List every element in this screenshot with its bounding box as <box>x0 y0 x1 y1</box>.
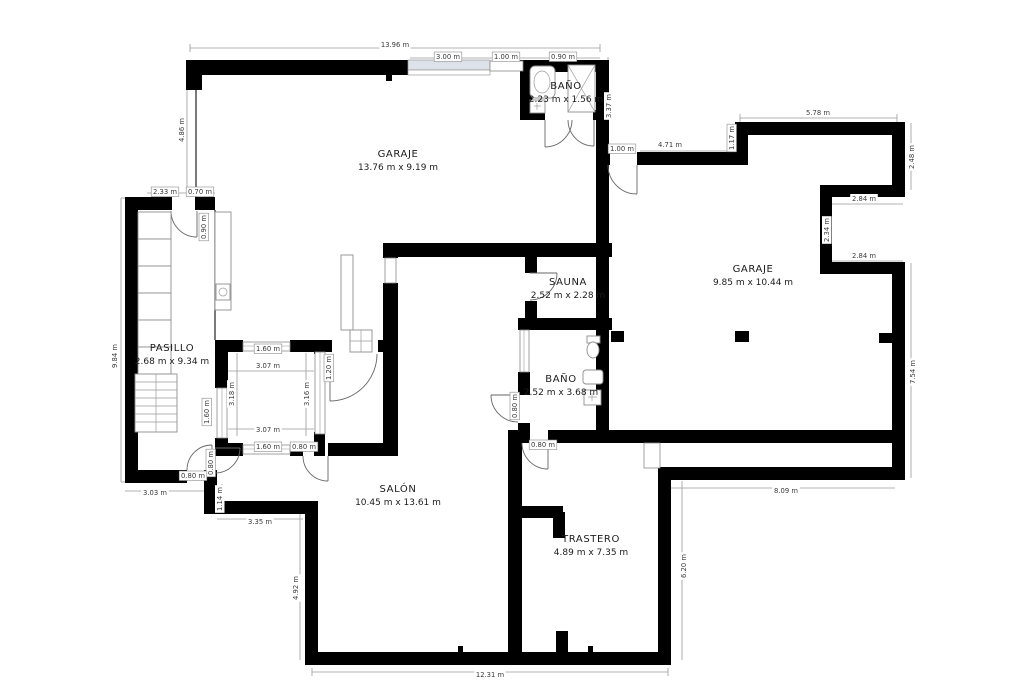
floorplan-drawing: GARAJE13.76 m x 9.19 mBAÑO2.23 m x 1.56 … <box>0 0 1024 693</box>
dimension-label: 3.07 m <box>254 425 282 435</box>
dimension-text: 3.18 m <box>228 382 236 406</box>
room-dimensions: 10.45 m x 13.61 m <box>355 498 441 508</box>
door-garage-entry <box>608 165 637 194</box>
room-label: SAUNA <box>549 277 587 288</box>
dimension-label: 0.90 m <box>199 213 209 241</box>
dimension-text: 2.84 m <box>852 252 876 260</box>
dimension-label: 0.90 m <box>549 52 577 62</box>
room-dimensions: 2.68 m x 9.34 m <box>135 357 209 367</box>
dimension-text: 12.31 m <box>476 671 505 679</box>
dimension-label: 3.07 m <box>254 361 282 371</box>
dimension-label: 0.80 m <box>290 442 318 452</box>
dimension-label: 7.54 m <box>908 358 918 386</box>
toilet-icon <box>587 336 600 358</box>
counter-2 <box>341 255 372 352</box>
dimension-label: 13.96 m <box>379 40 410 50</box>
dimension-text: 0.80 m <box>181 472 205 480</box>
dimension-label: 3.18 m <box>227 380 237 408</box>
dimension-label: 3.03 m <box>141 488 169 498</box>
stairs <box>135 374 177 432</box>
dimension-text: 1.60 m <box>256 443 280 451</box>
dimension-text: 2.48 m <box>908 145 916 169</box>
dimension-label: 0.80 m <box>510 392 520 420</box>
dimension-text: 1.00 m <box>610 145 634 153</box>
room-dimensions: 9.85 m x 10.44 m <box>713 278 793 288</box>
dimension-text: 2.33 m <box>153 188 177 196</box>
room-label: TRASTERO <box>561 534 620 545</box>
dimension-text: 0.90 m <box>200 215 208 239</box>
dimension-text: 3.03 m <box>143 489 167 497</box>
room-label: GARAJE <box>378 149 419 160</box>
dimension-label: 4.86 m <box>177 116 187 144</box>
dimension-text: 3.00 m <box>436 53 460 61</box>
dimension-text: 9.84 m <box>111 344 119 368</box>
room-dimensions: 2.52 m x 2.28 m <box>531 291 605 301</box>
dimension-text: 0.80 m <box>531 441 555 449</box>
dimension-text: 1.20 m <box>325 356 333 380</box>
room-dimensions: 2.23 m x 1.56 m <box>529 95 603 105</box>
dimension-text: 0.80 m <box>511 394 519 418</box>
dimension-label: 3.16 m <box>302 380 312 408</box>
dimension-label: 0.80 m <box>179 471 207 481</box>
counter-sink <box>215 212 231 310</box>
dimension-label: 5.78 m <box>804 108 832 118</box>
dimension-label: 2.34 m <box>822 216 832 244</box>
door-vestibule-bottom <box>303 456 328 481</box>
dimension-text: 13.96 m <box>381 41 410 49</box>
room-label: BAÑO <box>550 79 581 92</box>
dimension-label: 4.71 m <box>656 140 684 150</box>
dimension-label: 0.80 m <box>206 449 216 477</box>
dimension-text: 5.78 m <box>806 109 830 117</box>
dimension-text: 1.17 m <box>728 126 736 150</box>
dimension-label: 1.00 m <box>608 144 636 154</box>
room-label: PASILLO <box>150 343 194 354</box>
dimension-text: 1.60 m <box>203 400 211 424</box>
dimension-text: 3.16 m <box>303 382 311 406</box>
dimension-label: 6.20 m <box>679 552 689 580</box>
dimension-text: 3.37 m <box>605 94 613 118</box>
door-passage <box>330 354 377 401</box>
dimension-text: 7.54 m <box>909 360 917 384</box>
room-label: BAÑO <box>545 372 576 385</box>
dimension-label: 2.33 m <box>151 187 179 197</box>
dimension-text: 4.92 m <box>292 576 300 600</box>
dimension-label: 3.00 m <box>434 52 462 62</box>
walls <box>125 60 905 665</box>
dimension-text: 1.60 m <box>256 345 280 353</box>
dimension-label: 2.84 m <box>850 251 878 261</box>
dimension-text: 2.34 m <box>823 218 831 242</box>
dimension-label: 1.00 m <box>492 52 520 62</box>
dimension-label: 3.35 m <box>246 517 274 527</box>
dimension-label: 12.31 m <box>474 670 505 680</box>
room-label: GARAJE <box>733 264 774 275</box>
dimension-text: 3.07 m <box>256 362 280 370</box>
door-pasillo-top <box>171 211 197 237</box>
dimension-text: 1.14 m <box>216 487 224 511</box>
dimension-text: 4.86 m <box>178 118 186 142</box>
dimension-text: 0.70 m <box>188 188 212 196</box>
dimension-label: 8.09 m <box>772 486 800 496</box>
dimension-label: 4.92 m <box>291 574 301 602</box>
dimension-label: 0.70 m <box>186 187 214 197</box>
dimension-text: 6.20 m <box>680 554 688 578</box>
dimension-label: 9.84 m <box>110 342 120 370</box>
dimension-label: 3.37 m <box>604 92 614 120</box>
bathtub2-icon <box>583 370 603 384</box>
dimension-text: 3.35 m <box>248 518 272 526</box>
dimension-text: 0.80 m <box>207 451 215 475</box>
room-dimensions: 4.89 m x 7.35 m <box>554 548 628 558</box>
dimension-label: 0.80 m <box>529 440 557 450</box>
dimension-text: 0.80 m <box>292 443 316 451</box>
dimension-label: 1.17 m <box>727 124 737 152</box>
dimension-text: 2.84 m <box>852 195 876 203</box>
dimension-label: 1.60 m <box>202 398 212 426</box>
dimension-text: 3.07 m <box>256 426 280 434</box>
dimension-label: 2.84 m <box>850 194 878 204</box>
dimension-text: 1.00 m <box>494 53 518 61</box>
dimension-label: 1.20 m <box>324 354 334 382</box>
room-dimensions: 13.76 m x 9.19 m <box>358 163 438 173</box>
dimension-label: 2.48 m <box>907 143 917 171</box>
floorplan-page: GARAJE13.76 m x 9.19 mBAÑO2.23 m x 1.56 … <box>0 0 1024 693</box>
dimension-label: 1.60 m <box>254 344 282 354</box>
room-dimensions: 2.52 m x 3.68 m <box>524 388 598 398</box>
dimension-label: 1.14 m <box>215 485 225 513</box>
dimension-label: 1.60 m <box>254 442 282 452</box>
dimension-text: 8.09 m <box>774 487 798 495</box>
dimension-text: 4.71 m <box>658 141 682 149</box>
room-label: SALÓN <box>380 482 417 495</box>
dimension-text: 0.90 m <box>551 53 575 61</box>
